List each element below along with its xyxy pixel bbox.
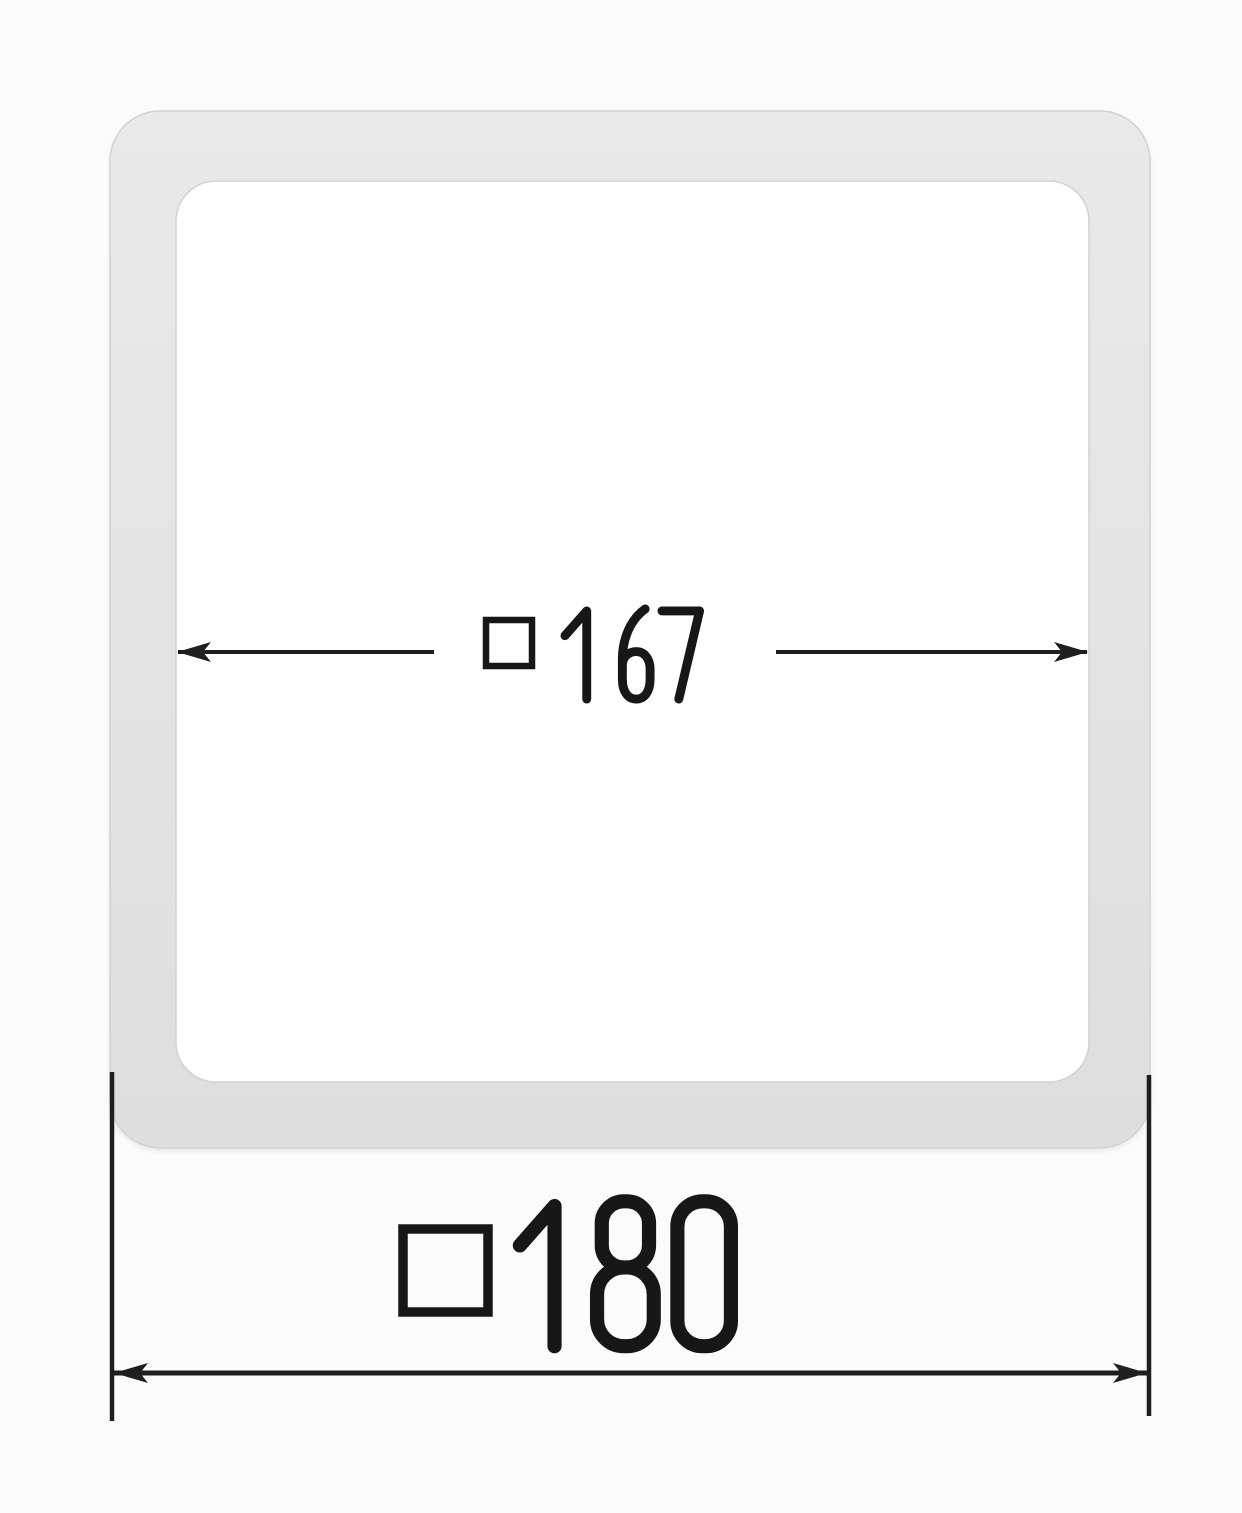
outer-dimension-value — [520, 1201, 731, 1346]
outer-square-symbol-icon — [403, 1229, 488, 1312]
page: { "figure": { "description": "Dimensione… — [0, 0, 1242, 1513]
drawing-canvas — [0, 0, 1242, 1513]
technical-drawing — [0, 0, 1242, 1513]
